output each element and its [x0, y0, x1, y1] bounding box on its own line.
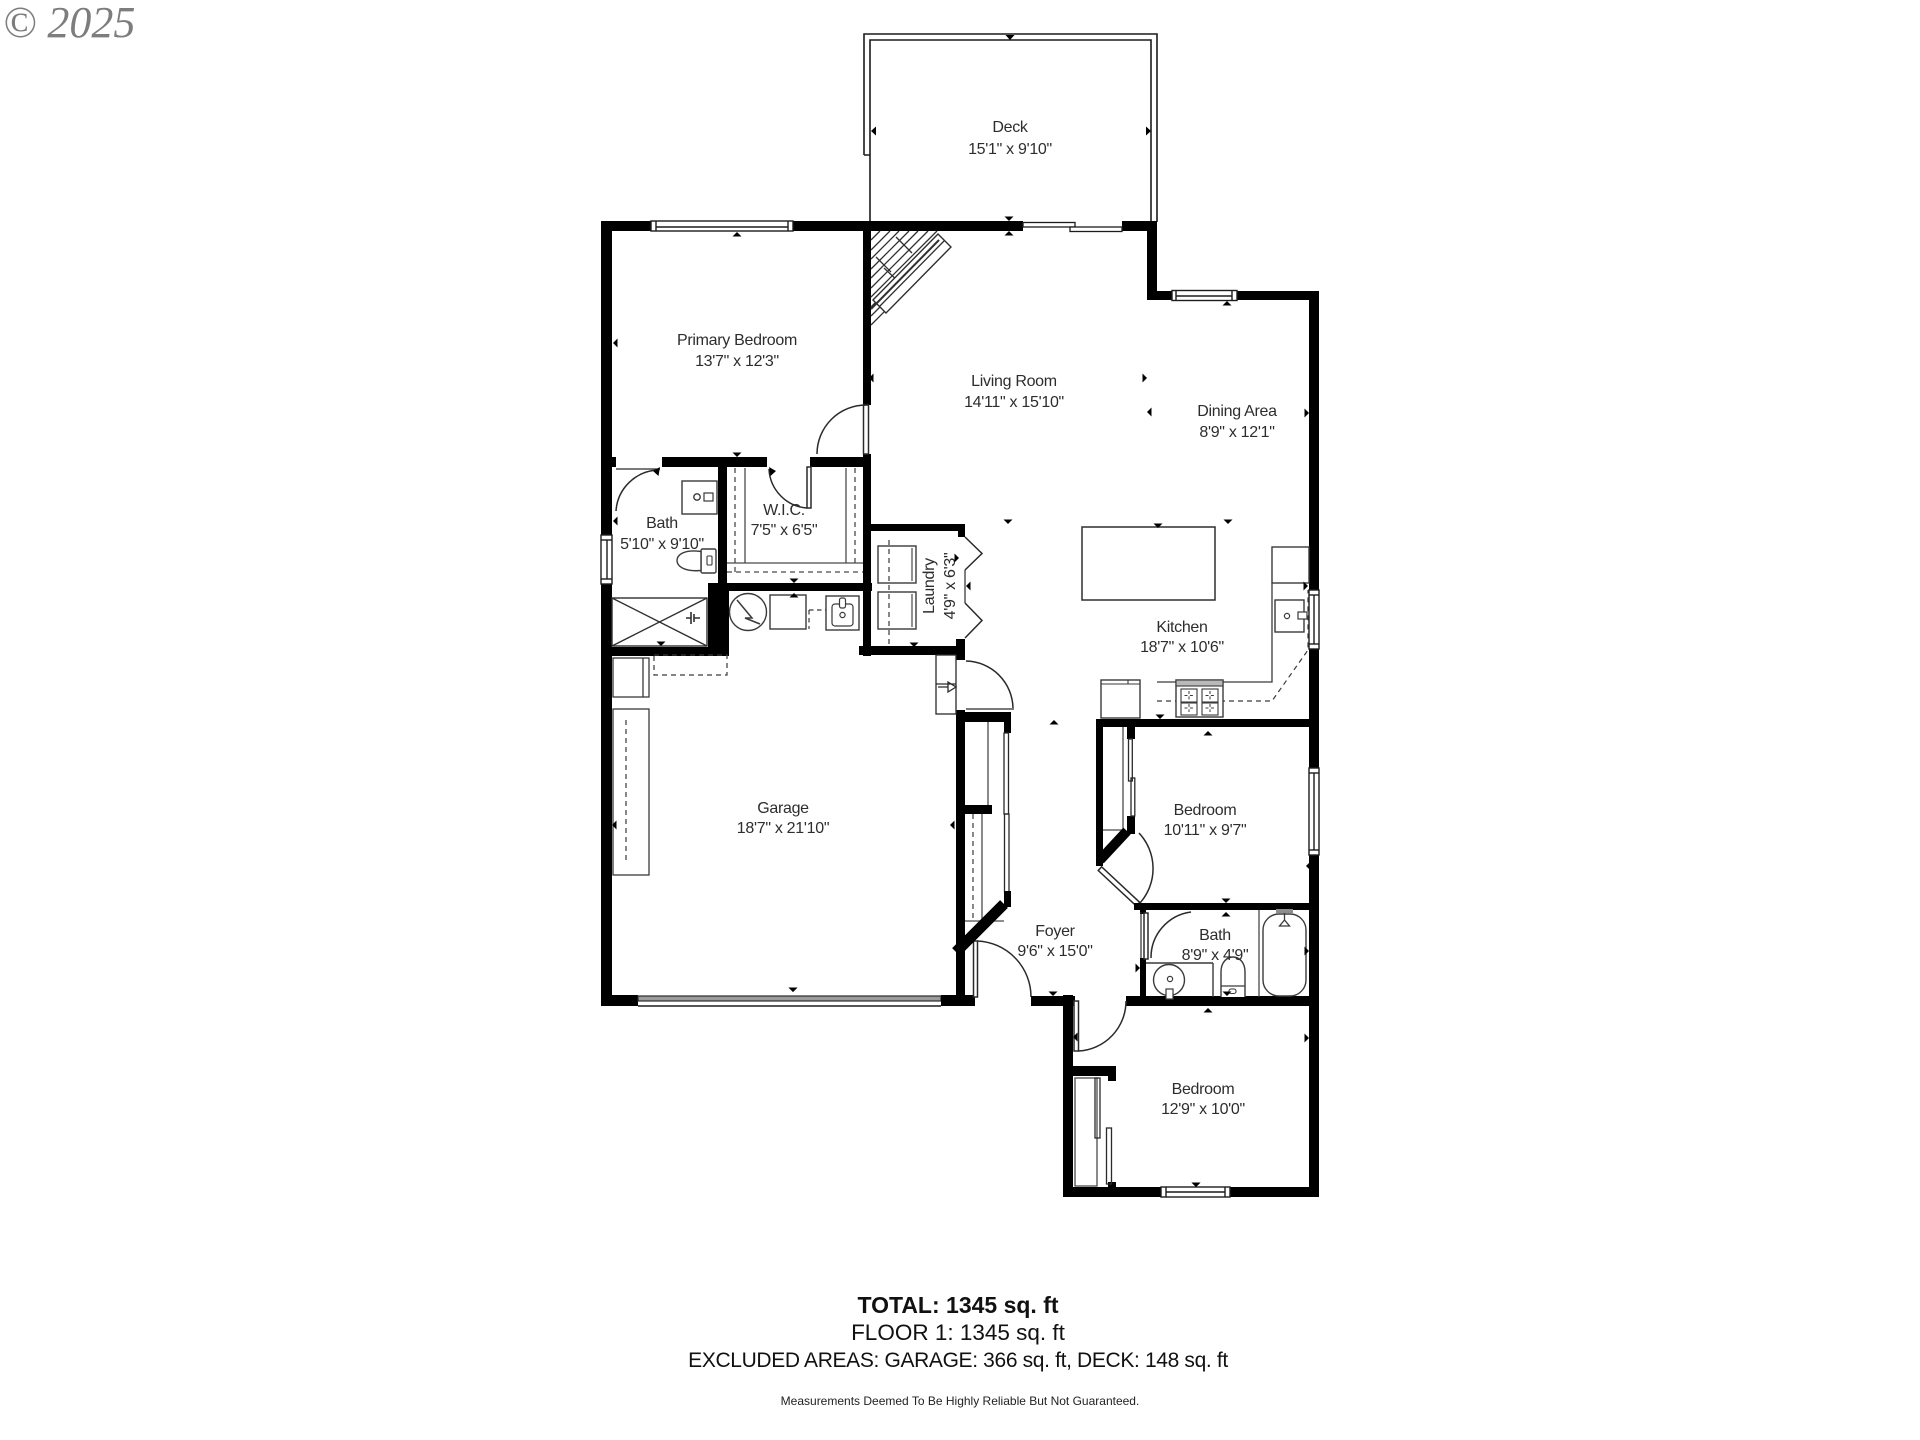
svg-text:W.I.C.: W.I.C. [763, 502, 805, 519]
svg-text:Measurements Deemed To Be High: Measurements Deemed To Be Highly Reliabl… [781, 1394, 1140, 1408]
svg-text:8'9" x 4'9": 8'9" x 4'9" [1182, 947, 1249, 964]
svg-text:Bath: Bath [1199, 927, 1231, 944]
svg-text:15'1" x 9'10": 15'1" x 9'10" [968, 141, 1052, 158]
svg-text:9'6" x 15'0": 9'6" x 15'0" [1017, 943, 1092, 960]
svg-text:18'7" x 21'10": 18'7" x 21'10" [737, 820, 829, 837]
svg-text:12'9" x 10'0": 12'9" x 10'0" [1161, 1101, 1245, 1118]
svg-text:Bedroom: Bedroom [1174, 802, 1237, 819]
svg-text:14'11" x 15'10": 14'11" x 15'10" [964, 394, 1064, 411]
svg-text:© 2025: © 2025 [3, 0, 135, 47]
svg-text:5'10" x 9'10": 5'10" x 9'10" [620, 536, 704, 553]
svg-text:TOTAL: 1345 sq. ft: TOTAL: 1345 sq. ft [857, 1292, 1058, 1318]
svg-text:EXCLUDED AREAS: GARAGE: 366 sq: EXCLUDED AREAS: GARAGE: 366 sq. ft, DECK… [688, 1349, 1228, 1372]
svg-text:Bedroom: Bedroom [1172, 1081, 1235, 1098]
svg-text:Kitchen: Kitchen [1156, 619, 1207, 636]
svg-text:13'7" x 12'3": 13'7" x 12'3" [695, 353, 779, 370]
svg-text:8'9" x 12'1": 8'9" x 12'1" [1199, 424, 1274, 441]
svg-text:10'11" x 9'7": 10'11" x 9'7" [1164, 822, 1247, 839]
svg-text:FLOOR 1: 1345 sq. ft: FLOOR 1: 1345 sq. ft [851, 1320, 1066, 1345]
svg-text:Primary Bedroom: Primary Bedroom [677, 332, 797, 349]
svg-text:7'5" x 6'5": 7'5" x 6'5" [751, 522, 818, 539]
svg-text:Foyer: Foyer [1035, 923, 1075, 940]
svg-text:18'7" x 10'6": 18'7" x 10'6" [1140, 639, 1224, 656]
svg-text:Garage: Garage [757, 800, 809, 817]
svg-text:Laundry: Laundry [921, 558, 938, 614]
svg-text:Living Room: Living Room [971, 373, 1057, 390]
svg-text:Bath: Bath [646, 515, 678, 532]
svg-text:4'9" x 6'3": 4'9" x 6'3" [942, 553, 959, 620]
svg-text:Deck: Deck [992, 119, 1029, 136]
svg-text:Dining Area: Dining Area [1197, 403, 1277, 420]
